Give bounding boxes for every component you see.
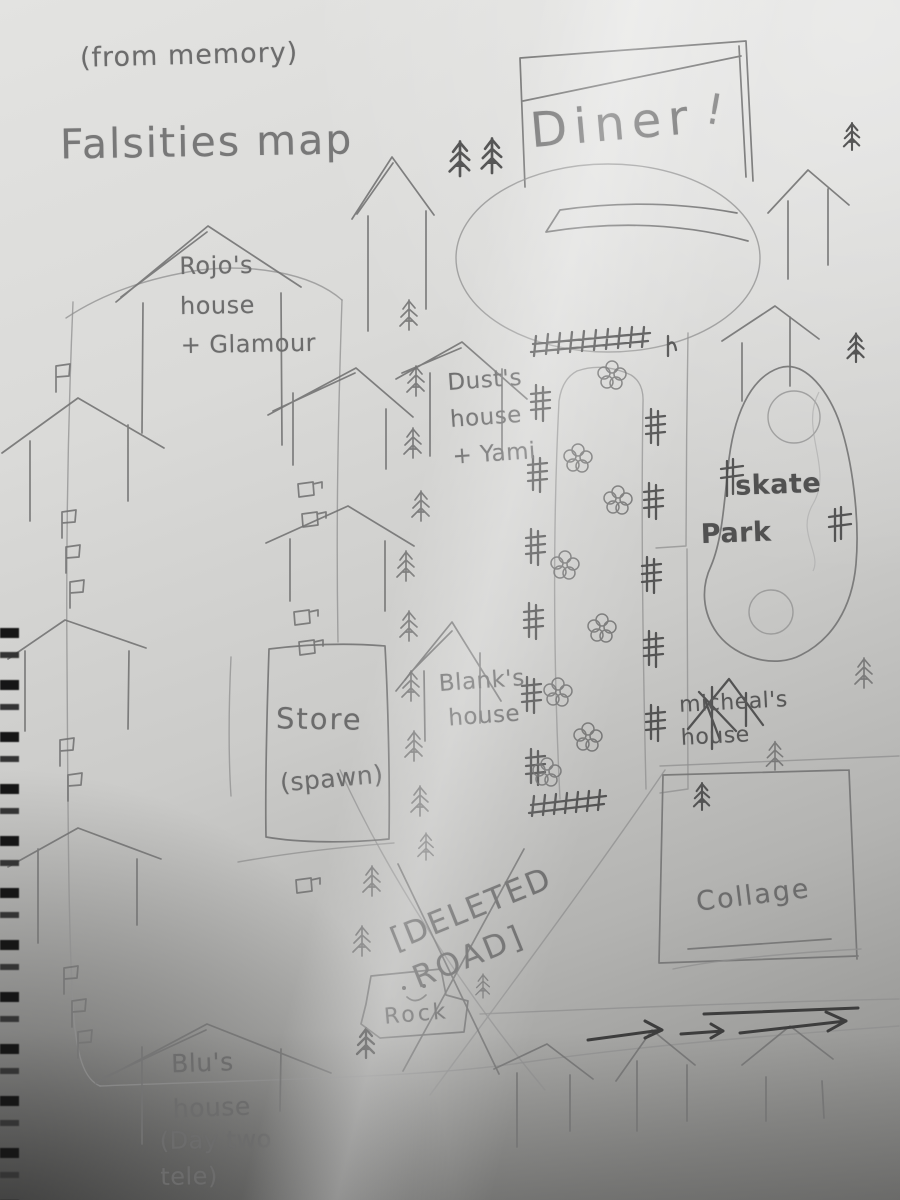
pine-tree: [411, 786, 428, 816]
left-house-3: [8, 828, 161, 943]
pine-tree: [405, 731, 422, 761]
collage-top-road: [660, 756, 899, 766]
fence-row-bottom: [529, 790, 606, 816]
supply-box: [298, 482, 322, 497]
supply-box: [294, 610, 318, 625]
skate-bowl-bottom: [749, 590, 793, 634]
supply-box: [299, 640, 323, 655]
collage-building: [659, 770, 858, 963]
flower: [604, 486, 632, 514]
pine-tree: [353, 926, 370, 956]
pine-tree: [402, 671, 419, 701]
diner-parking-oval: [456, 164, 760, 352]
arrow-right-large: [740, 1012, 846, 1033]
flag-marker: [56, 364, 70, 392]
skate-rail-right: [829, 507, 851, 541]
fence: [524, 603, 543, 639]
supply-box: [296, 878, 320, 893]
flag-marker: [70, 580, 84, 608]
label-micheals-house: micheal's house: [678, 683, 790, 755]
flower: [598, 361, 626, 389]
flag-markers: [56, 364, 92, 1058]
garden-path: [522, 327, 676, 816]
mid-house-2: [266, 506, 414, 611]
far-bottom-road: [480, 999, 899, 1014]
flag-marker: [66, 545, 80, 573]
fence: [646, 409, 665, 445]
map-title: Falsities map: [59, 109, 353, 176]
pine-tree: [400, 300, 417, 330]
pine-tree: [855, 658, 872, 688]
pencil-sketch: [0, 0, 900, 1200]
flower: [564, 444, 592, 472]
pine-tree: [847, 334, 863, 363]
pine-tree: [400, 611, 417, 641]
fence: [642, 557, 661, 593]
arrow-right: [588, 1021, 662, 1040]
flower: [544, 678, 572, 706]
label-rock: Rock: [383, 995, 450, 1034]
fence: [531, 385, 550, 421]
pine-tree: [844, 123, 859, 150]
arrow-bar: [704, 1008, 858, 1014]
pine-tree: [482, 139, 502, 174]
arrow-right-small: [681, 1024, 723, 1038]
pine-tree: [412, 491, 429, 521]
pine-tree: [404, 428, 421, 458]
label-diner: Diner: [527, 81, 698, 167]
garden-outline: [555, 367, 646, 799]
fence: [644, 631, 663, 667]
notebook-photo: (from memory) Falsities map Diner ! Rojo…: [0, 0, 900, 1200]
pine-tree: [450, 142, 470, 177]
label-dusts-house: Dust's house + Yami: [446, 359, 537, 475]
label-skate-park: skate Park: [698, 460, 823, 559]
pine-tree: [694, 783, 709, 810]
label-blanks-house: Blank's house: [426, 660, 541, 737]
flower: [574, 723, 602, 751]
left-road: [67, 302, 100, 1086]
mid-house-1: [268, 368, 413, 469]
label-blus-note: (Day two tele): [159, 1121, 272, 1195]
flag-marker: [78, 1030, 92, 1058]
flag-marker: [62, 510, 76, 538]
fence: [644, 483, 663, 519]
bottom-house-3: [742, 1026, 833, 1121]
pine-tree: [363, 866, 380, 896]
flower: [588, 614, 616, 642]
flag-marker: [68, 773, 82, 801]
pine-tree: [397, 551, 414, 581]
label-store: Store: [276, 697, 363, 742]
right-house-2: [722, 306, 819, 401]
pine-tree: [418, 833, 433, 860]
direction-arrows: [588, 1008, 858, 1040]
bottom-house-2: [616, 1030, 695, 1131]
middle-road: [337, 300, 342, 642]
label-rojos-house: Rojo's house + Glamour: [179, 245, 316, 366]
diner-awning: [546, 204, 748, 241]
house-top-middle: [352, 157, 434, 331]
left-house-2: [8, 620, 146, 731]
supply-boxes: [294, 482, 326, 893]
fence: [526, 529, 545, 565]
left-house-1: [2, 398, 164, 521]
store-building: [266, 644, 390, 841]
label-from-memory: (from memory): [80, 33, 299, 79]
label-blus-house: Blu's house: [170, 1039, 251, 1132]
rock-eye: [402, 986, 406, 990]
fence: [646, 705, 665, 741]
right-house-1: [768, 170, 849, 279]
spiral-binding: [0, 628, 19, 1200]
